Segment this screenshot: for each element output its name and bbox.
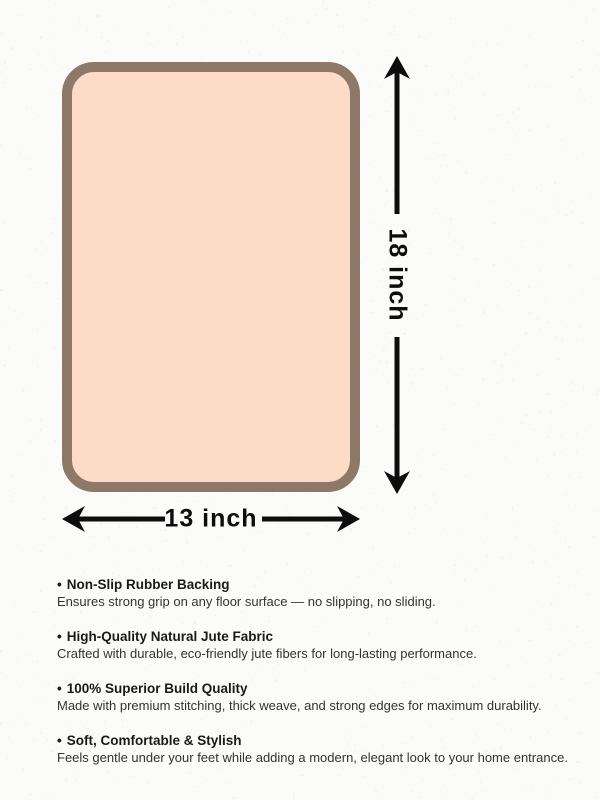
bullet-icon: •: [57, 577, 62, 593]
feature-title: • Soft, Comfortable & Stylish: [57, 733, 600, 749]
dimension-diagram: 18 inch 13 inch: [0, 0, 600, 565]
feature-title-text: Soft, Comfortable & Stylish: [67, 733, 242, 749]
feature-title: • High-Quality Natural Jute Fabric: [57, 629, 600, 645]
feature-title-text: 100% Superior Build Quality: [67, 681, 248, 697]
bullet-icon: •: [57, 733, 62, 749]
feature-title: • 100% Superior Build Quality: [57, 681, 600, 697]
list-item: • High-Quality Natural Jute Fabric Craft…: [57, 629, 600, 662]
bullet-icon: •: [57, 681, 62, 697]
feature-title-text: High-Quality Natural Jute Fabric: [67, 629, 273, 645]
list-item: • Soft, Comfortable & Stylish Feels gent…: [57, 733, 600, 766]
feature-description: Crafted with durable, eco-friendly jute …: [57, 646, 600, 662]
feature-title: • Non-Slip Rubber Backing: [57, 577, 600, 593]
list-item: • Non-Slip Rubber Backing Ensures strong…: [57, 577, 600, 610]
feature-description: Feels gentle under your feet while addin…: [57, 750, 600, 766]
feature-description: Made with premium stitching, thick weave…: [57, 698, 600, 714]
height-label: 18 inch: [383, 228, 412, 321]
width-label: 13 inch: [164, 505, 257, 534]
doormat-shape: [62, 62, 360, 492]
feature-description: Ensures strong grip on any floor surface…: [57, 594, 600, 610]
list-item: • 100% Superior Build Quality Made with …: [57, 681, 600, 714]
doormat-product-infographic: { "diagram": { "height_label": "18 inch"…: [0, 0, 600, 800]
bullet-icon: •: [57, 629, 62, 645]
feature-list: • Non-Slip Rubber Backing Ensures strong…: [57, 577, 600, 785]
feature-title-text: Non-Slip Rubber Backing: [67, 577, 230, 593]
